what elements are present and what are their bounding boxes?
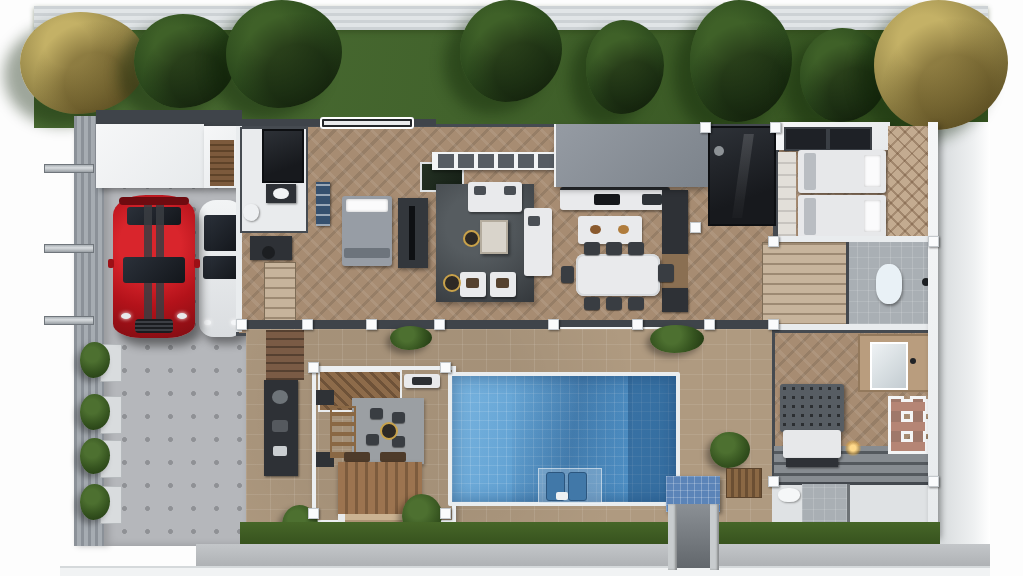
shower-head bbox=[714, 146, 724, 156]
wall-post-1 bbox=[236, 319, 247, 330]
right-side-yard bbox=[934, 122, 990, 562]
entry-timber-slats bbox=[210, 140, 234, 186]
bbq-grill-2 bbox=[272, 420, 288, 432]
dining-chair-1 bbox=[584, 242, 600, 255]
twin-bed-2-pillow bbox=[864, 200, 881, 232]
white-car-windshield bbox=[203, 256, 240, 279]
bedroom1-throw bbox=[344, 248, 390, 258]
tv-partition-wall bbox=[398, 198, 428, 268]
cooktop bbox=[594, 194, 620, 205]
wall-post-12 bbox=[768, 236, 779, 247]
entry-ramp-floor bbox=[677, 504, 710, 568]
side-table-2 bbox=[443, 274, 461, 292]
bedroom2-roof-edge bbox=[776, 122, 890, 150]
perimeter-walkway bbox=[196, 544, 990, 568]
right-outer-wall bbox=[928, 122, 938, 536]
dining-chair-6 bbox=[628, 297, 644, 310]
bathroom1-vanity bbox=[266, 184, 296, 203]
deck-bench-2 bbox=[380, 452, 406, 462]
red-sports-car bbox=[113, 195, 195, 338]
floorplan-3d-render bbox=[0, 0, 1023, 576]
bedroom1-window bbox=[320, 117, 414, 129]
island-dish bbox=[618, 225, 629, 234]
skylight-panel-1 bbox=[784, 127, 828, 151]
entry-corridor-roof bbox=[556, 124, 708, 187]
wall-post-2 bbox=[302, 319, 313, 330]
red-car-grille bbox=[135, 319, 173, 333]
pergola-post-4 bbox=[440, 508, 451, 519]
twin-bed-1 bbox=[798, 150, 886, 193]
wall-bench bbox=[726, 468, 762, 498]
front-boundary-wall bbox=[60, 566, 990, 576]
frame-art bbox=[891, 399, 925, 451]
red-car-rear-window bbox=[127, 207, 181, 225]
kitchen-island bbox=[578, 216, 642, 244]
pergola-post-3 bbox=[308, 508, 319, 519]
kitchen-lower-unit bbox=[662, 288, 688, 312]
skylight-panel-2 bbox=[828, 127, 872, 151]
wall-post-4 bbox=[434, 319, 445, 330]
side-table-items bbox=[412, 377, 432, 385]
master-toilet bbox=[778, 488, 800, 502]
laundry-bathroom-dark bbox=[708, 126, 776, 226]
timber-trellis bbox=[330, 406, 356, 458]
master-bedding bbox=[783, 430, 841, 458]
gate-rail-2 bbox=[44, 244, 94, 253]
pool-lounger-2 bbox=[568, 472, 587, 501]
living-room-windows bbox=[432, 152, 560, 170]
pool-drink-table bbox=[556, 492, 568, 500]
bedroom1-desk-chair bbox=[262, 246, 275, 259]
deck-bench-1 bbox=[344, 452, 370, 462]
wall-post-10 bbox=[770, 122, 781, 133]
twin-bed-2-runner bbox=[804, 198, 816, 235]
bedroom2-wardrobe bbox=[778, 152, 796, 236]
outdoor-table bbox=[380, 422, 398, 440]
bedroom1-pillows bbox=[346, 199, 388, 212]
wall-post-9 bbox=[700, 122, 711, 133]
pergola-post-1 bbox=[308, 362, 319, 373]
dining-table bbox=[576, 254, 660, 296]
master-vanity bbox=[858, 334, 930, 392]
carport-roof bbox=[96, 124, 204, 188]
wall-post-14 bbox=[768, 476, 779, 487]
glass-reflection bbox=[732, 134, 754, 218]
chaise-cushion bbox=[528, 216, 540, 226]
swimming-pool bbox=[448, 372, 680, 506]
coffee-table bbox=[480, 220, 508, 254]
pergola-side-table bbox=[404, 374, 440, 388]
fruit-bowl bbox=[590, 225, 601, 234]
wall-lamp-glow bbox=[845, 440, 861, 456]
twin-bed-1-pillow bbox=[864, 155, 881, 187]
armchair-1-pillow bbox=[466, 278, 479, 288]
armchair-1 bbox=[460, 272, 486, 297]
gallery-frames bbox=[888, 396, 928, 454]
kitchen-sink bbox=[642, 194, 662, 205]
gate-rail-1 bbox=[44, 164, 94, 173]
armchair-2-pillow bbox=[496, 278, 509, 288]
wall-post-11 bbox=[690, 222, 701, 233]
wall-post-5 bbox=[548, 319, 559, 330]
dining-chair-5 bbox=[606, 297, 622, 310]
gate-rail-3 bbox=[44, 316, 94, 325]
bathroom2-toilet bbox=[876, 264, 902, 304]
dining-chair-8 bbox=[658, 264, 674, 282]
vanity-mirror bbox=[870, 342, 908, 390]
red-car-mirror-left bbox=[108, 259, 114, 268]
wall-post-13 bbox=[928, 236, 939, 247]
wall-post-15 bbox=[928, 476, 939, 487]
dining-chair-3 bbox=[628, 242, 644, 255]
master-headboard bbox=[780, 384, 844, 432]
dining-chair-7 bbox=[561, 266, 574, 283]
twin-bed-2 bbox=[798, 195, 886, 238]
white-car-headlight-left bbox=[204, 320, 211, 325]
master-bed-bench bbox=[786, 458, 838, 467]
outdoor-chair-3 bbox=[366, 434, 379, 445]
bathroom1-toilet bbox=[243, 204, 259, 221]
entry-ramp-side-left bbox=[668, 504, 677, 570]
side-table-1 bbox=[463, 230, 480, 247]
sofa-cushion-2 bbox=[504, 186, 516, 195]
twin-bed-1-runner bbox=[804, 153, 816, 190]
bathroom1-sink bbox=[273, 188, 289, 199]
tv-screen bbox=[409, 206, 415, 260]
fridge-tall-units bbox=[662, 190, 688, 254]
entry-ramp-side-right bbox=[710, 504, 719, 570]
vanity-faucet bbox=[910, 358, 916, 364]
red-car-rear-wing bbox=[119, 197, 189, 205]
red-car-mirror-right bbox=[194, 259, 200, 268]
south-grass-strip bbox=[240, 522, 940, 546]
wall-post-7 bbox=[704, 319, 715, 330]
pergola-post-2 bbox=[440, 362, 451, 373]
brick-feature-column bbox=[266, 330, 304, 380]
bedroom1-blue-cabinet bbox=[316, 182, 330, 226]
wall-post-8 bbox=[768, 319, 779, 330]
bathroom1-shower bbox=[262, 129, 304, 183]
outdoor-chair-2 bbox=[392, 412, 405, 423]
dining-chair-2 bbox=[606, 242, 622, 255]
red-car-headlight-left bbox=[121, 313, 131, 319]
hall-closet bbox=[762, 242, 848, 326]
kitchen-counter bbox=[560, 187, 670, 210]
bbq-grill-1 bbox=[272, 390, 288, 404]
bathroom2 bbox=[846, 242, 934, 324]
sofa-chaise bbox=[524, 208, 552, 276]
sofa-two-seater bbox=[468, 182, 522, 212]
armchair-2 bbox=[490, 272, 516, 297]
wall-post-3 bbox=[366, 319, 377, 330]
dining-chair-4 bbox=[584, 297, 600, 310]
sofa-cushion-1 bbox=[474, 186, 486, 195]
red-car-headlight-right bbox=[177, 313, 187, 319]
outdoor-kitchen-bbq bbox=[264, 380, 298, 476]
pergola-planter-1 bbox=[316, 390, 334, 405]
bbq-sink bbox=[273, 446, 287, 456]
outdoor-chair-1 bbox=[370, 408, 383, 419]
wall-post-6 bbox=[632, 319, 643, 330]
red-car-windshield bbox=[123, 257, 185, 283]
bedroom1-bed bbox=[342, 196, 392, 266]
white-car-roof-glass bbox=[204, 215, 239, 251]
